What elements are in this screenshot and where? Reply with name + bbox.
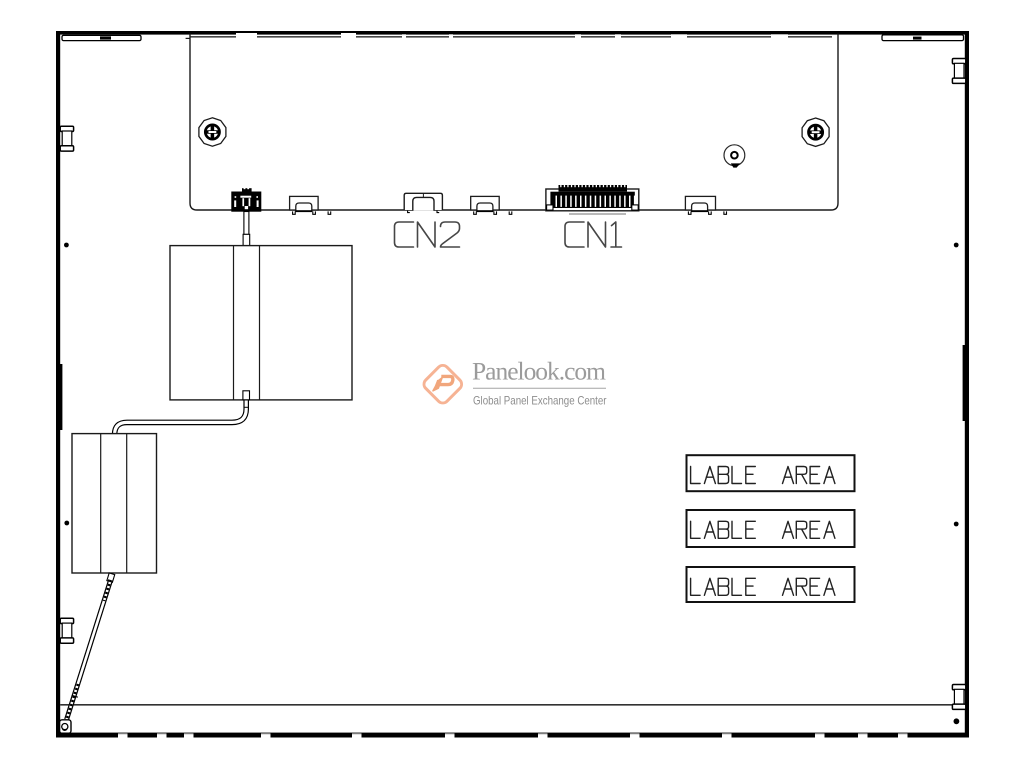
svg-text:Panelook.com: Panelook.com bbox=[472, 356, 606, 385]
svg-text:Global Panel Exchange Center: Global Panel Exchange Center bbox=[473, 394, 607, 408]
